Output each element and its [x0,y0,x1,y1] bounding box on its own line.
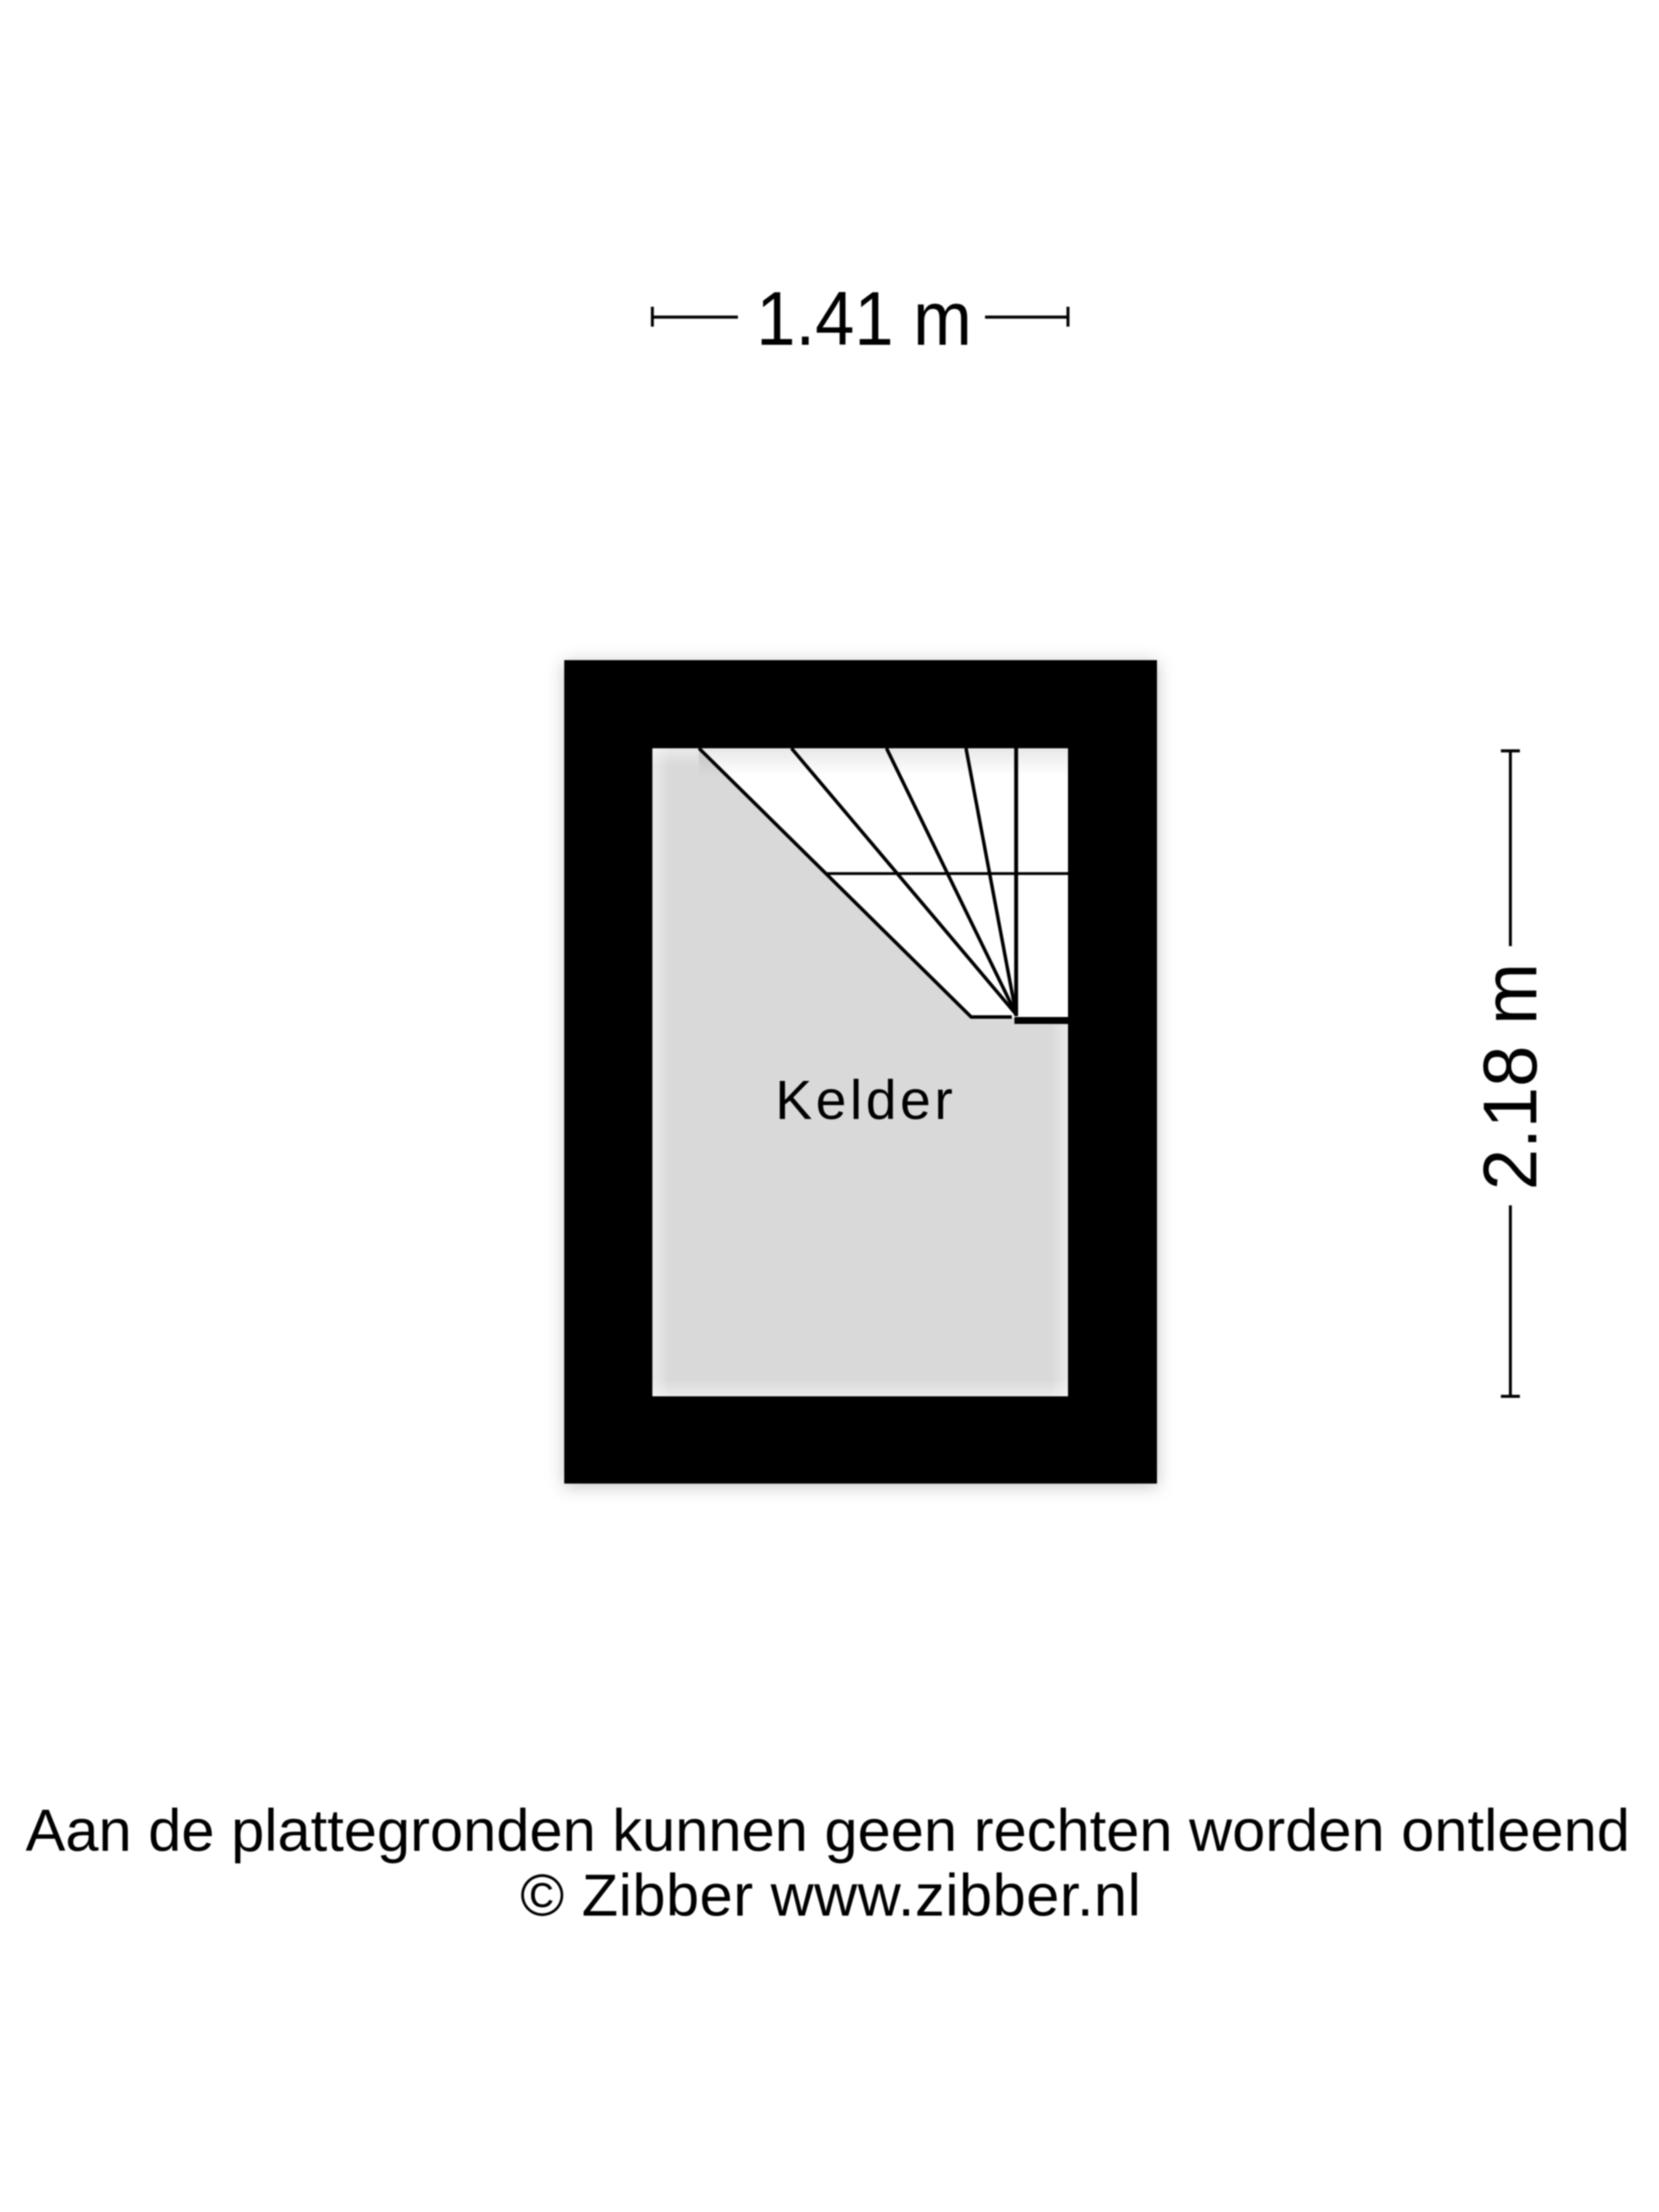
svg-text:Aan de plattegronden kunnen ge: Aan de plattegronden kunnen geen rechten… [26,1797,1630,1864]
svg-text:1.41 m: 1.41 m [756,276,972,361]
svg-text:Kelder: Kelder [775,1069,957,1131]
svg-text:© Zibber www.zibber.nl: © Zibber www.zibber.nl [520,1862,1141,1929]
svg-text:2.18 m: 2.18 m [1467,963,1553,1191]
